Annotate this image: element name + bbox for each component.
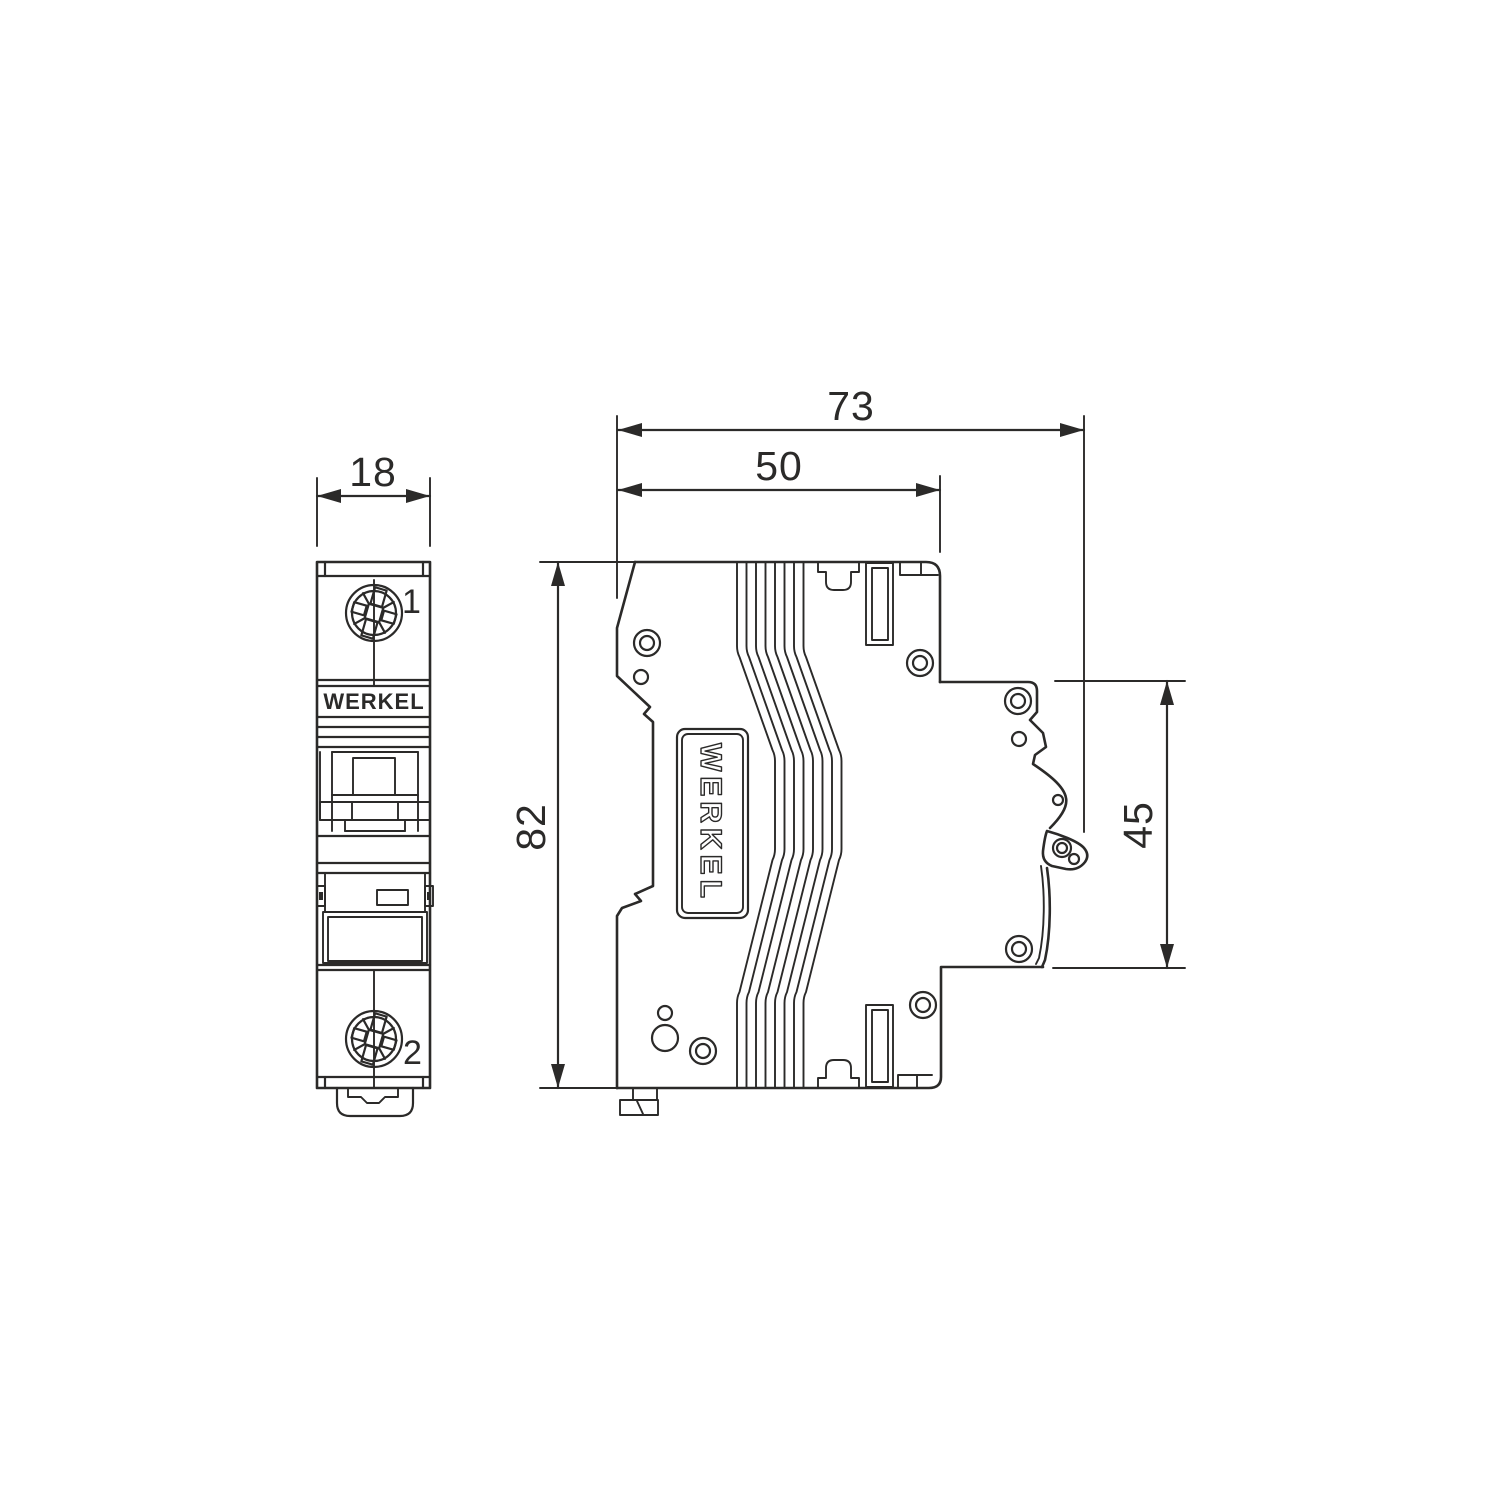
- side-outline: [617, 562, 1087, 1088]
- dimension-body-depth: 50: [618, 443, 940, 552]
- front-view: 1 WERKEL: [317, 562, 433, 1116]
- dimension-rail-height: 45: [1053, 681, 1185, 968]
- rail-height-value: 45: [1115, 801, 1161, 849]
- front-width-value: 18: [349, 449, 397, 495]
- side-bottom-edge-details: [818, 1005, 932, 1088]
- front-bottom-clip: [337, 1088, 413, 1116]
- terminal-1-label: 1: [402, 583, 421, 621]
- front-brand-label: WERKEL: [323, 689, 424, 714]
- marking-window: [377, 890, 408, 905]
- body-depth-value: 50: [755, 443, 803, 489]
- front-toggle-area: [320, 752, 430, 831]
- brand-text-front: WERKEL: [323, 689, 424, 714]
- side-brand-plate: WERKEL: [677, 729, 748, 918]
- drawing-container: 1 WERKEL: [0, 0, 1500, 1500]
- front-screw-terminal-1: 1: [346, 583, 421, 643]
- rocker-panel: [323, 912, 427, 963]
- dimension-height: 82: [508, 562, 634, 1088]
- side-seam-lines: [737, 562, 842, 1088]
- side-din-clip-slider: [620, 1088, 658, 1115]
- terminal-2-label: 2: [403, 1034, 422, 1072]
- brand-text-side: WERKEL: [694, 743, 727, 903]
- front-screw-terminal-2: 2: [346, 1009, 422, 1072]
- technical-drawing-canvas: 1 WERKEL: [0, 0, 1500, 1500]
- side-view: WERKEL: [617, 562, 1087, 1115]
- side-top-edge-details: [818, 562, 938, 645]
- dimension-total-depth: 73: [617, 383, 1084, 832]
- dimension-front-width: 18: [317, 449, 430, 546]
- din-latch-lever: [1043, 831, 1087, 869]
- height-value: 82: [508, 803, 554, 851]
- total-depth-value: 73: [827, 383, 875, 429]
- front-latch-window-area: [317, 873, 433, 963]
